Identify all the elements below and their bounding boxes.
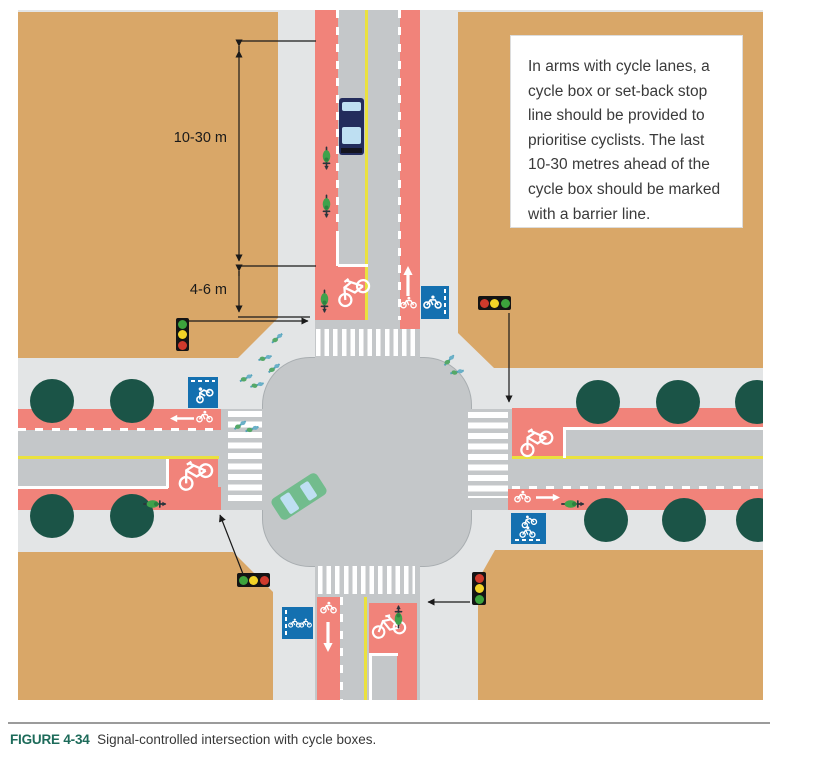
intersection-diagram: In arms with cycle lanes, a cycle box or… <box>18 10 763 700</box>
caption-divider <box>8 722 770 724</box>
figure-caption: FIGURE 4-34 Signal-controlled intersecti… <box>10 732 376 747</box>
figure-label: FIGURE 4-34 <box>10 732 90 747</box>
figure-caption-text: Signal-controlled intersection with cycl… <box>97 732 376 747</box>
figure-page: In arms with cycle lanes, a cycle box or… <box>0 0 827 760</box>
annotation-lines <box>18 10 763 700</box>
